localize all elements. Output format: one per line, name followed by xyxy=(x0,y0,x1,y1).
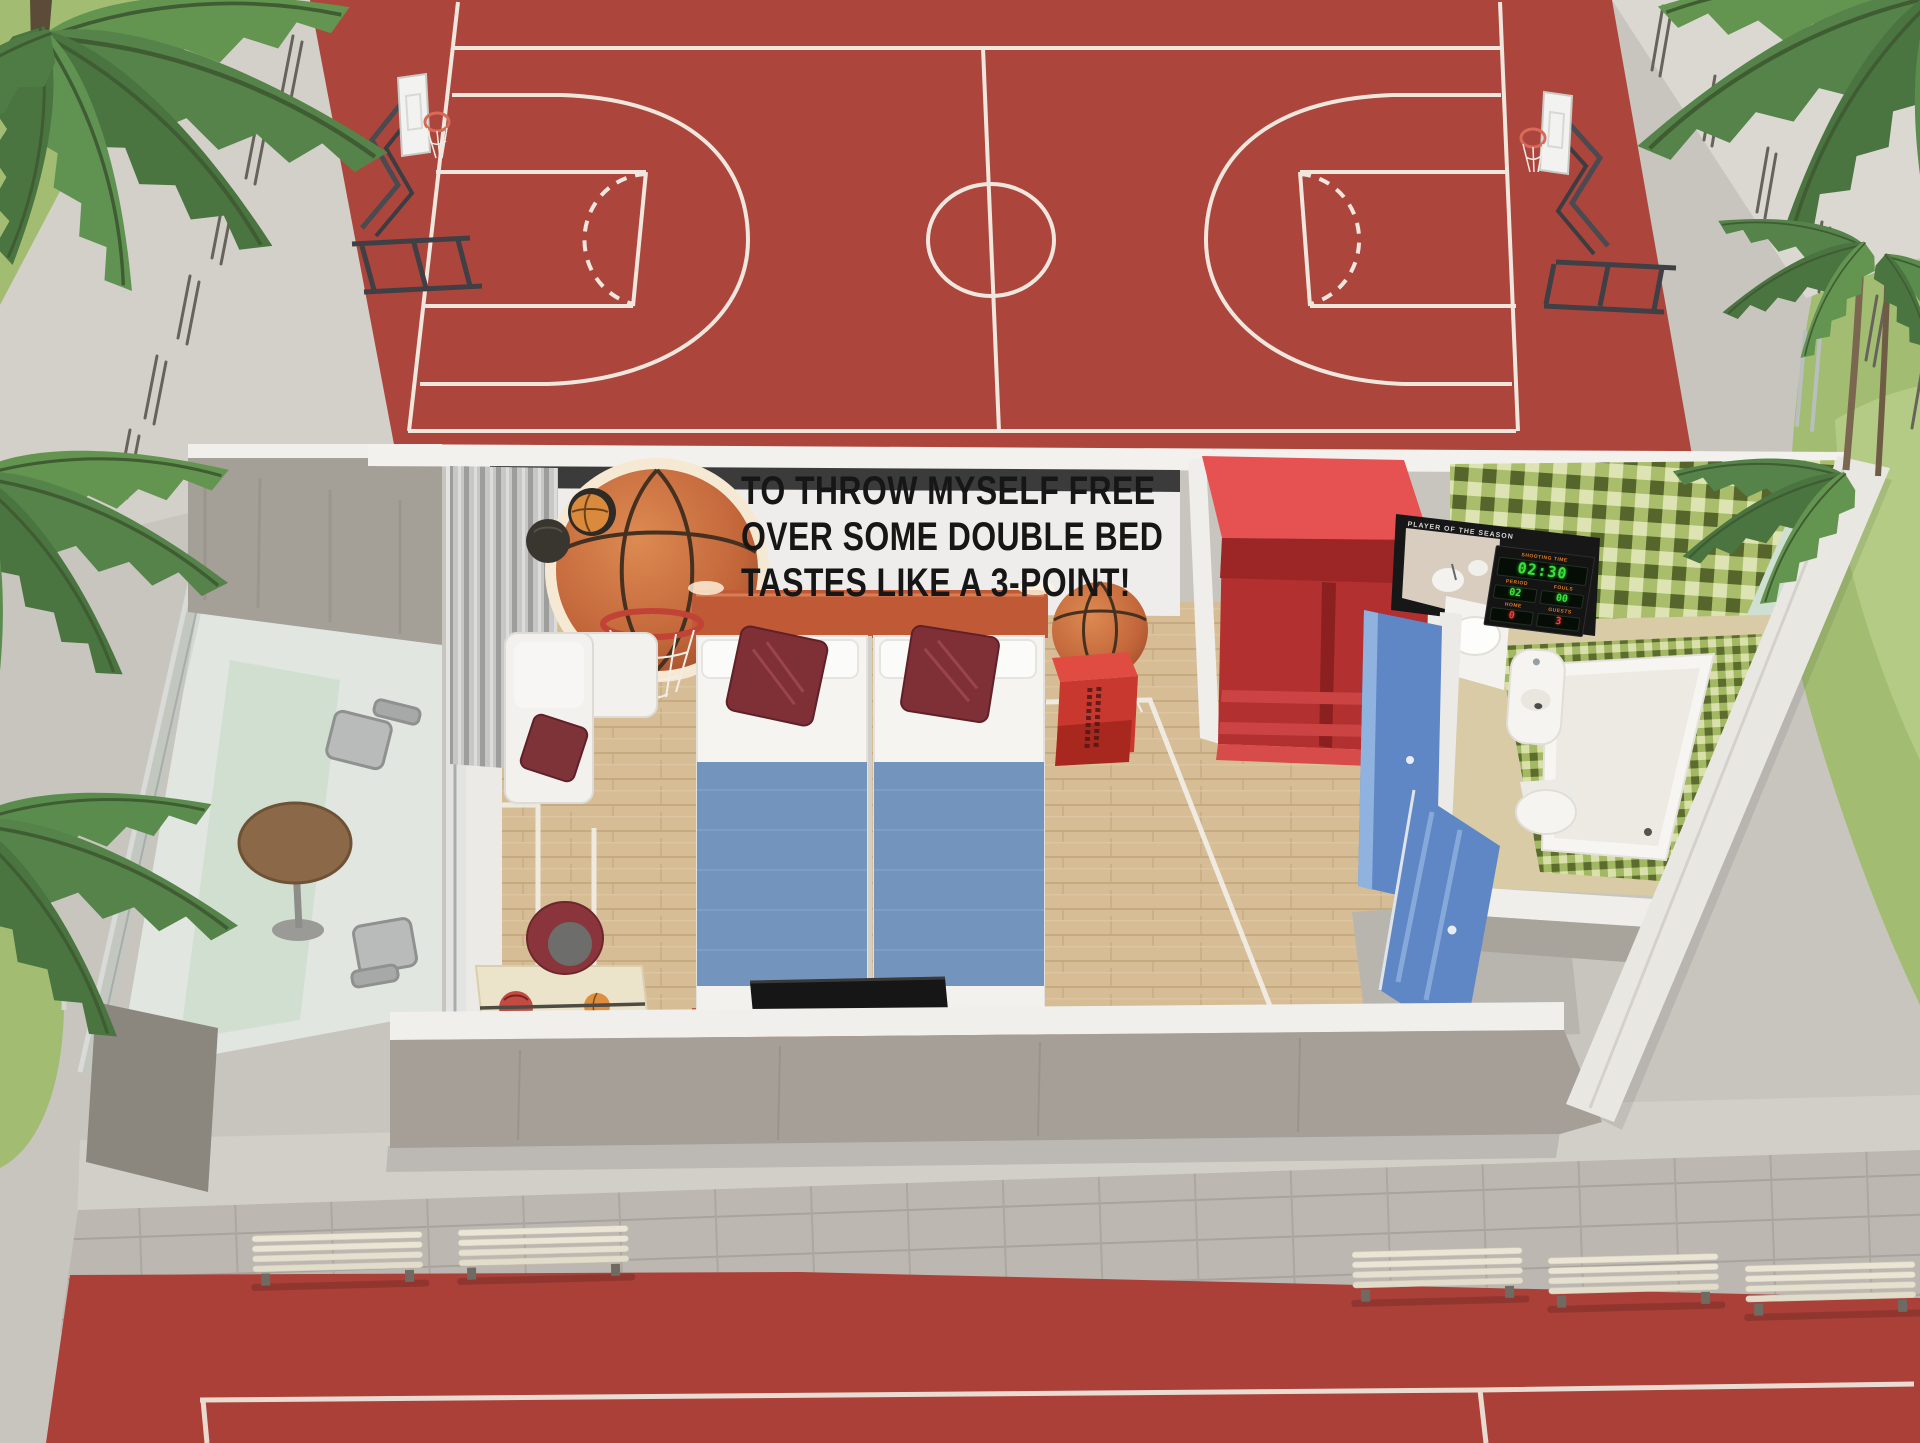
door-handle xyxy=(1448,926,1457,935)
scoreboard: SHOOTING TIME 02:30 PERIOD 02 FOULS 00 H… xyxy=(1483,545,1595,637)
wall-quote-line-1: TO THROW MYSELF FREE xyxy=(741,468,1069,514)
dark-ball xyxy=(526,519,570,563)
tub-chair xyxy=(527,902,603,974)
scene-graphics xyxy=(0,0,1920,1443)
bidet xyxy=(1506,648,1566,746)
maroon-pillow xyxy=(725,625,829,727)
toilet xyxy=(1516,778,1576,834)
wall-quote-line-2: OVER SOME DOUBLE BED xyxy=(741,514,1069,560)
hotel-room-3d-render: TO THROW MYSELF FREE OVER SOME DOUBLE BE… xyxy=(0,0,1920,1443)
red-nightstand xyxy=(1052,652,1138,766)
bottom-basketball-court xyxy=(46,1272,1920,1443)
bed-runner-blue xyxy=(697,762,867,986)
bed-runner-blue xyxy=(874,762,1044,986)
door-handle xyxy=(1406,756,1414,764)
maroon-pillow xyxy=(900,625,1000,724)
wall-quote-line-3: TASTES LIKE A 3-POINT! xyxy=(741,560,1069,606)
balcony-table xyxy=(239,803,351,883)
twin-beds xyxy=(688,581,1054,1042)
wall-quote: TO THROW MYSELF FREE OVER SOME DOUBLE BE… xyxy=(741,468,1069,606)
south-wall-face xyxy=(390,1030,1602,1148)
top-basketball-court xyxy=(310,0,1692,455)
